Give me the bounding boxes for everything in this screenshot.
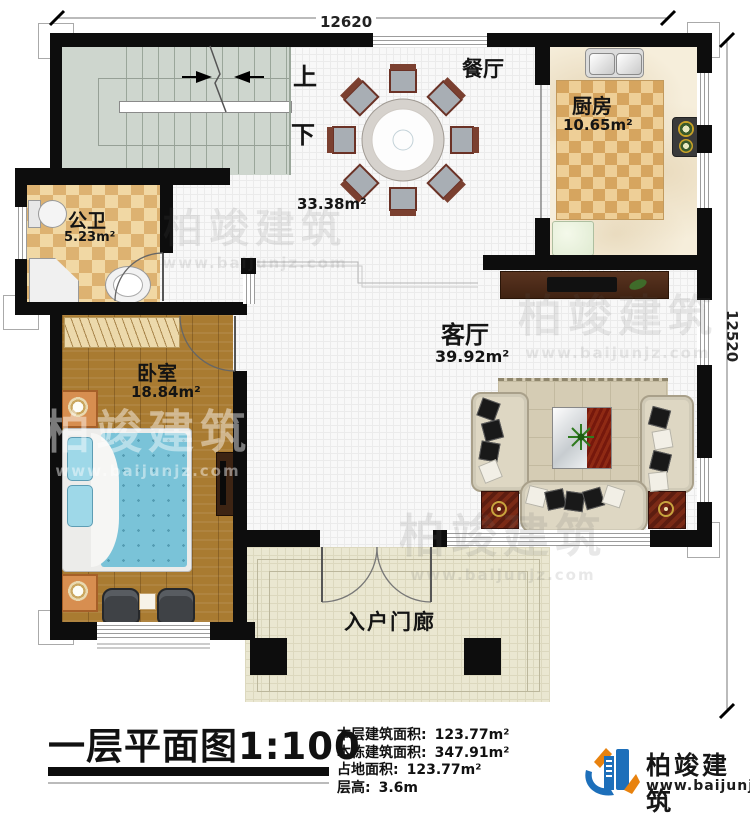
lamp	[67, 580, 89, 602]
wall-bath-left-b	[15, 259, 27, 304]
coffee-table	[552, 407, 612, 469]
wall-bedroom-left	[50, 315, 62, 640]
wall-top-right	[487, 33, 712, 47]
sofa-pillow	[478, 440, 500, 462]
sofa-pillow	[648, 471, 669, 492]
tv-cabinet	[500, 271, 669, 299]
info-line: 占地面积:123.77m²	[337, 762, 509, 780]
wall-kitchen-left-top	[535, 33, 550, 85]
window-living-right-2	[697, 458, 712, 502]
wall-bath-left-a	[15, 185, 27, 207]
pillow	[67, 485, 93, 527]
logo-building-icon	[580, 744, 644, 800]
tv	[547, 277, 617, 292]
info-block: 本层建筑面积:123.77m² 本栋建筑面积:347.91m² 占地面积:123…	[337, 727, 509, 797]
label-bathroom: 公卫	[68, 211, 106, 232]
wall-kitchen-living	[483, 255, 712, 270]
wall-bedroom-right	[233, 371, 247, 640]
info-label: 层高:	[337, 780, 371, 798]
nightstand	[61, 574, 98, 612]
floor-plan-canvas: 餐厅 33.38m² 厨房 10.65m² 公卫 5.23m² 卧室 18.84…	[0, 0, 750, 814]
plant-decor	[628, 277, 648, 292]
wall-bedroom-top	[15, 302, 247, 315]
info-value: 347.91m²	[435, 745, 510, 763]
label-stairs-up: 上	[293, 64, 317, 90]
info-label: 本栋建筑面积:	[337, 745, 427, 763]
wall-bath-right	[160, 185, 173, 253]
wall-bedroom-bottom-left	[50, 622, 97, 640]
wall-dining-stub	[241, 258, 256, 274]
wall-bottom-right	[650, 530, 712, 547]
pillow	[67, 437, 93, 481]
burner	[678, 121, 694, 137]
coffee-table-glass	[553, 408, 587, 468]
wall-bedroom-bottom-right	[210, 622, 255, 640]
stair-handrail	[119, 101, 292, 113]
bedroom-tv-stand	[216, 452, 234, 516]
label-living: 客厅	[441, 322, 489, 348]
window-dining-top	[373, 33, 487, 47]
bath-sink-inner	[113, 273, 143, 297]
bedroom-chair	[102, 588, 140, 624]
info-line: 本栋建筑面积:347.91m²	[337, 745, 509, 763]
label-dining: 餐厅	[462, 58, 504, 81]
bedroom-tv	[220, 461, 226, 505]
bath-sink	[105, 266, 151, 304]
window-bedroom-bottom	[97, 622, 210, 640]
wall-right-c	[697, 208, 712, 300]
window-bathroom-left	[15, 207, 27, 259]
wall-bottom-left	[233, 530, 320, 547]
label-living-area: 39.92m²	[435, 348, 509, 366]
title-underline-thin	[48, 782, 329, 784]
info-value: 123.77m²	[407, 762, 482, 780]
wall-stair-bottom	[15, 168, 230, 185]
burner	[679, 139, 693, 153]
sink-basin	[616, 53, 642, 75]
wall-bottom-mid	[433, 530, 447, 547]
side-table-left	[481, 491, 519, 529]
sofa-pillow	[651, 428, 673, 450]
label-dining-area: 33.38m²	[297, 196, 367, 213]
info-label: 本层建筑面积:	[337, 727, 427, 745]
plan-title: 一层平面图1:100	[48, 716, 361, 770]
wall-top-left	[50, 33, 373, 47]
kitchen-sink	[585, 48, 644, 78]
porch-column-right	[464, 638, 501, 675]
dimension-right: 12520	[723, 306, 741, 366]
wardrobe	[64, 317, 180, 348]
label-bedroom: 卧室	[137, 362, 177, 384]
bed-frame	[62, 428, 192, 572]
side-table-right	[648, 491, 686, 529]
wall-right-a	[697, 33, 712, 73]
half-wall-hatch	[243, 274, 255, 304]
info-line: 本层建筑面积:123.77m²	[337, 727, 509, 745]
label-bathroom-area: 5.23m²	[64, 231, 115, 245]
coffee-table-wood	[587, 408, 611, 468]
fridge	[552, 221, 594, 256]
toilet-bowl	[38, 200, 67, 228]
nightstand	[61, 390, 98, 428]
label-kitchen: 厨房	[572, 95, 612, 117]
bedroom-chair	[157, 588, 195, 624]
wall-right-b	[697, 125, 712, 153]
sink-basin	[589, 53, 615, 75]
label-kitchen-area: 10.65m²	[563, 117, 633, 134]
window-living-right-1	[697, 300, 712, 365]
logo-url: www.baijunjz.com	[646, 778, 750, 794]
bedroom-side-table	[139, 593, 156, 610]
label-bedroom-area: 18.84m²	[131, 384, 201, 401]
wall-stair-left	[50, 33, 62, 180]
lamp	[67, 396, 89, 418]
stair-edge-line	[289, 45, 291, 175]
porch-column-left	[250, 638, 287, 675]
info-value: 3.6m	[379, 780, 418, 798]
window-living-bottom	[447, 530, 650, 547]
wall-right-d	[697, 365, 712, 458]
title-underline	[48, 767, 329, 776]
label-porch: 入户门廊	[344, 611, 436, 634]
window-kitchen-right-1	[697, 73, 712, 125]
window-kitchen-right-2	[697, 153, 712, 208]
info-value: 123.77m²	[435, 727, 510, 745]
info-line: 层高:3.6m	[337, 780, 509, 798]
info-label: 占地面积:	[337, 762, 399, 780]
dimension-top: 12620	[316, 13, 376, 31]
company-logo: 柏竣建筑 www.baijunjz.com	[580, 744, 750, 804]
label-stairs-down: 下	[291, 122, 315, 148]
stove	[672, 117, 700, 157]
